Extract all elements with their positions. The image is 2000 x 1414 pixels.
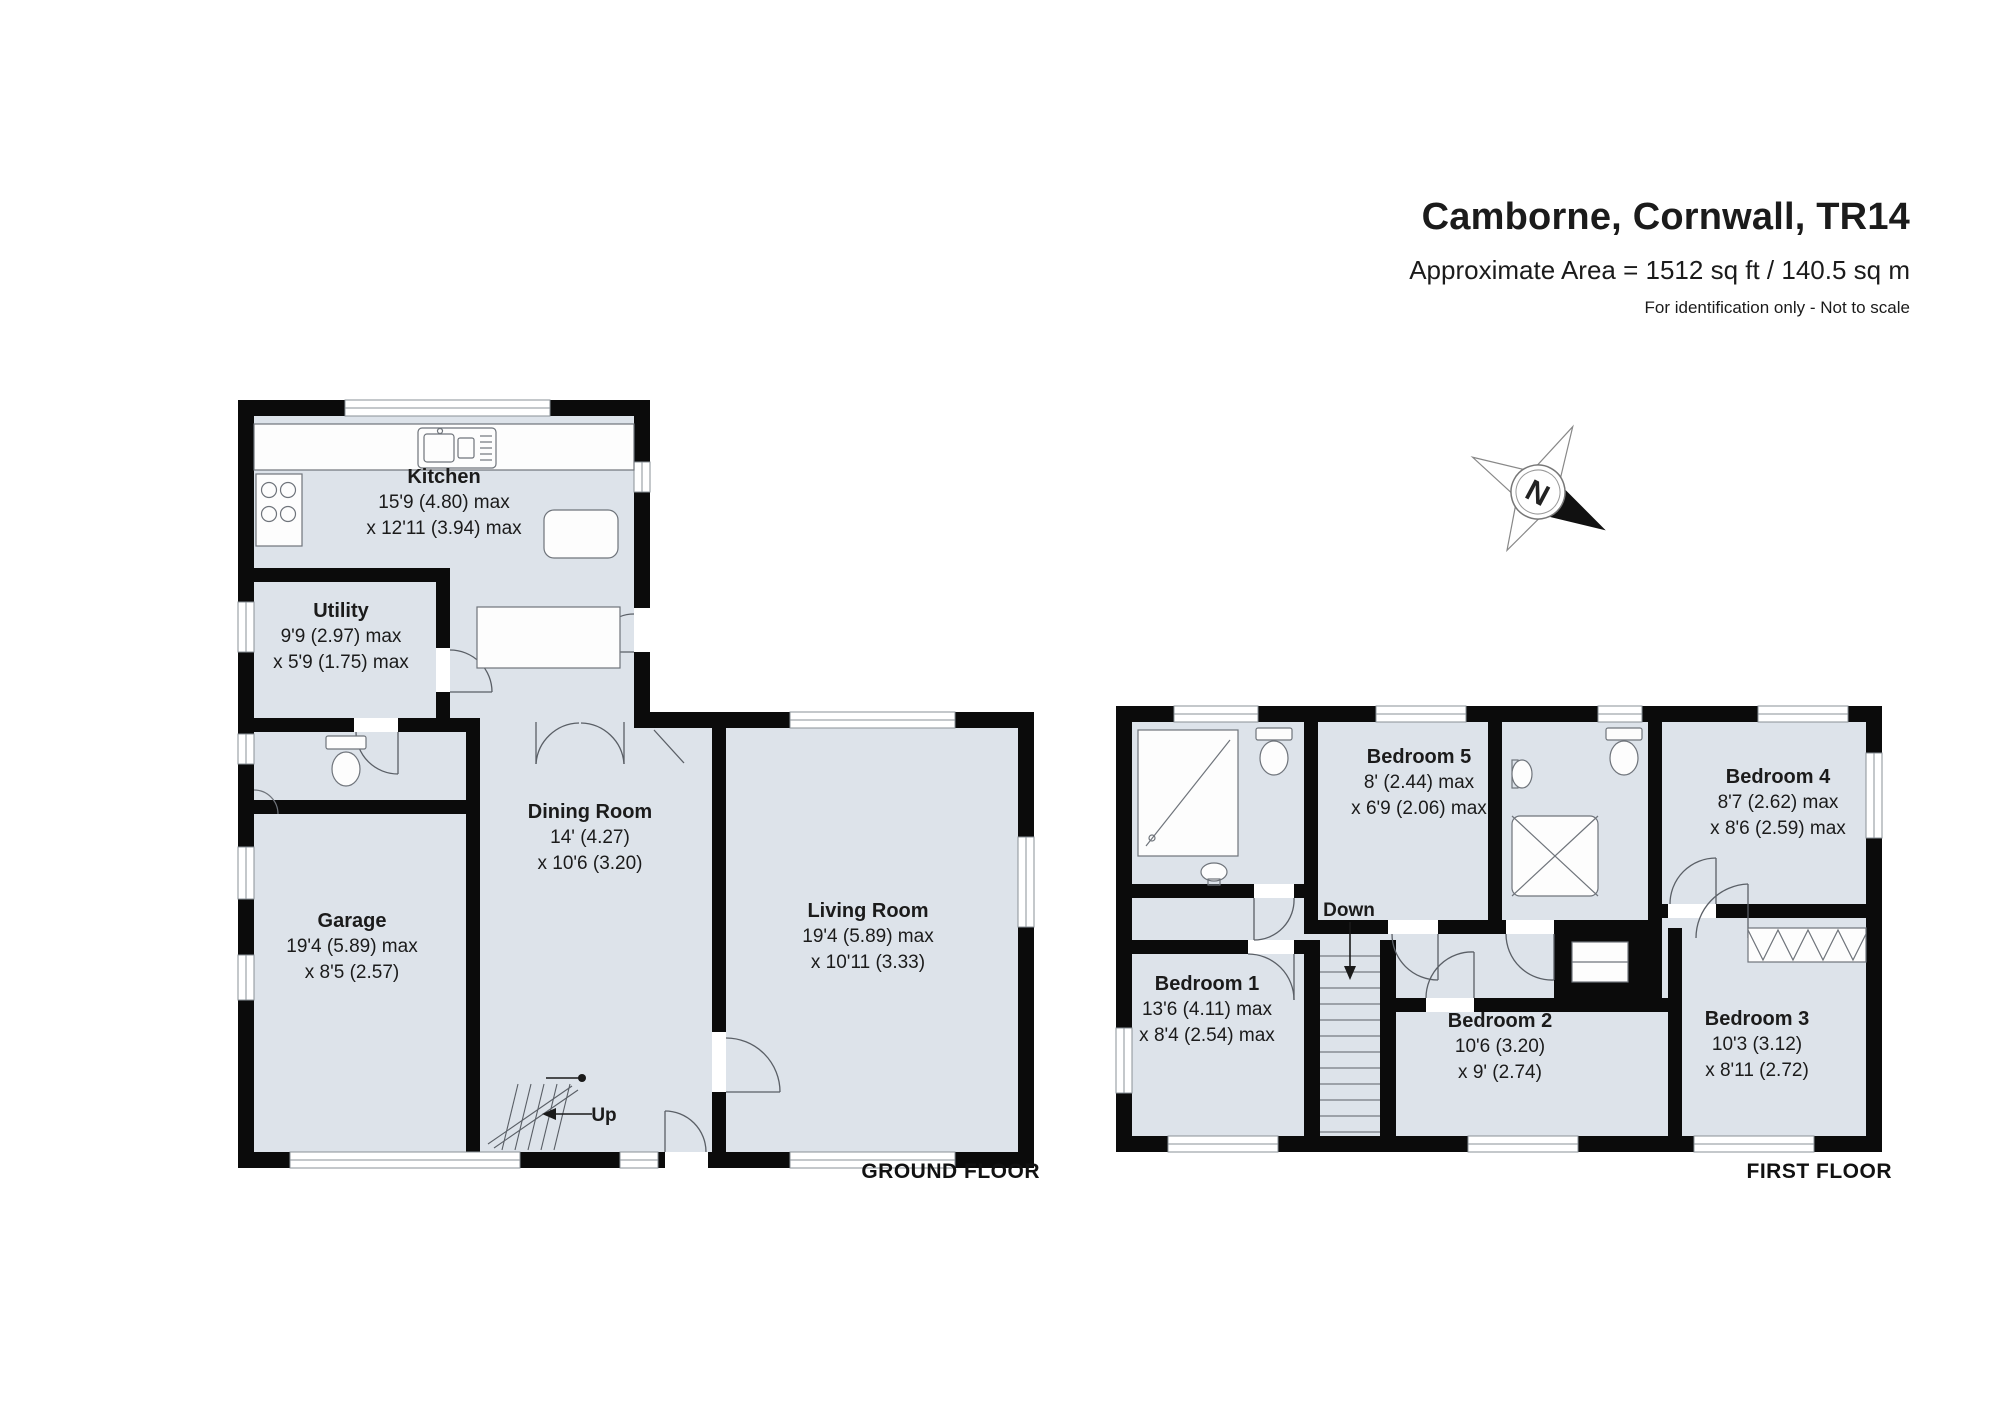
room-label-kitchen: Kitchen 15'9 (4.80) max x 12'11 (3.94) m…	[366, 464, 521, 542]
page-title: Camborne, Cornwall, TR14	[1409, 196, 1910, 239]
kitchen-peninsula	[477, 607, 620, 668]
room-label-bedroom-5: Bedroom 5 8' (2.44) max x 6'9 (2.06) max	[1351, 744, 1487, 822]
basin-icon	[1512, 760, 1532, 788]
ground-floor-title: GROUND FLOOR	[861, 1160, 1040, 1184]
wardrobe-icon	[1748, 928, 1866, 962]
shower-icon	[1138, 730, 1238, 856]
floorplan-page: { "header": { "title": "Camborne, Cornwa…	[0, 0, 2000, 1414]
room-label-bedroom-3: Bedroom 3 10'3 (3.12) x 8'11 (2.72)	[1705, 1006, 1809, 1084]
ground-floor-plan	[230, 392, 1040, 1182]
garage-door	[290, 1152, 520, 1168]
approximate-area: Approximate Area = 1512 sq ft / 140.5 sq…	[1409, 255, 1910, 286]
shower-tray-icon	[1512, 816, 1598, 896]
room-label-utility: Utility 9'9 (2.97) max x 5'9 (1.75) max	[273, 598, 409, 676]
hob-icon	[256, 474, 302, 546]
room-label-garage: Garage 19'4 (5.89) max x 8'5 (2.57)	[286, 908, 417, 986]
stairs-up-label: Up	[591, 1105, 616, 1127]
kitchen-table	[544, 510, 618, 558]
room-label-bedroom-1: Bedroom 1 13'6 (4.11) max x 8'4 (2.54) m…	[1139, 971, 1275, 1049]
first-floor-title: FIRST FLOOR	[1747, 1160, 1893, 1184]
room-label-bedroom-2: Bedroom 2 10'6 (3.20) x 9' (2.74)	[1448, 1008, 1552, 1086]
room-label-bedroom-4: Bedroom 4 8'7 (2.62) max x 8'6 (2.59) ma…	[1710, 764, 1846, 842]
room-label-living-room: Living Room 19'4 (5.89) max x 10'11 (3.3…	[802, 898, 933, 976]
plan-header: Camborne, Cornwall, TR14 Approximate Are…	[1409, 196, 1910, 318]
room-label-dining-room: Dining Room 14' (4.27) x 10'6 (3.20)	[528, 799, 652, 877]
stairs-down-label: Down	[1323, 900, 1375, 922]
sink-icon	[418, 428, 496, 468]
compass-north-icon: N	[1438, 392, 1638, 592]
disclaimer-note: For identification only - Not to scale	[1409, 298, 1910, 318]
